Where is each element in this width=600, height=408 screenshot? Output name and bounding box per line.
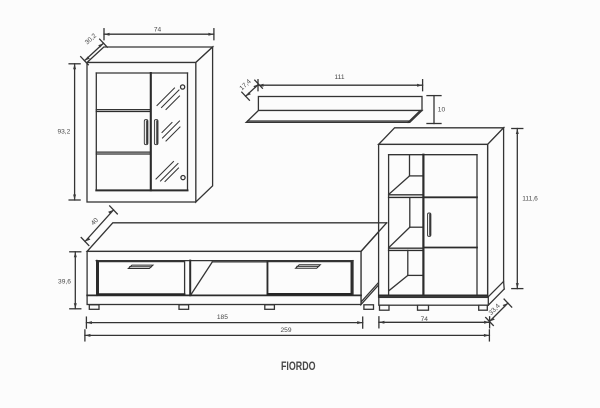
svg-text:111: 111 [334, 74, 344, 81]
svg-text:10: 10 [438, 107, 446, 114]
svg-text:93,2: 93,2 [57, 128, 70, 135]
svg-text:17,4: 17,4 [238, 78, 252, 92]
svg-text:33,4: 33,4 [488, 302, 502, 316]
svg-text:74: 74 [154, 27, 162, 34]
svg-text:39,6: 39,6 [58, 278, 71, 285]
svg-text:185: 185 [217, 314, 228, 321]
svg-text:74: 74 [421, 316, 429, 323]
svg-text:30,2: 30,2 [84, 32, 98, 46]
svg-text:FIORDO: FIORDO [281, 359, 316, 373]
svg-text:111,6: 111,6 [522, 196, 538, 203]
svg-text:259: 259 [280, 327, 291, 334]
